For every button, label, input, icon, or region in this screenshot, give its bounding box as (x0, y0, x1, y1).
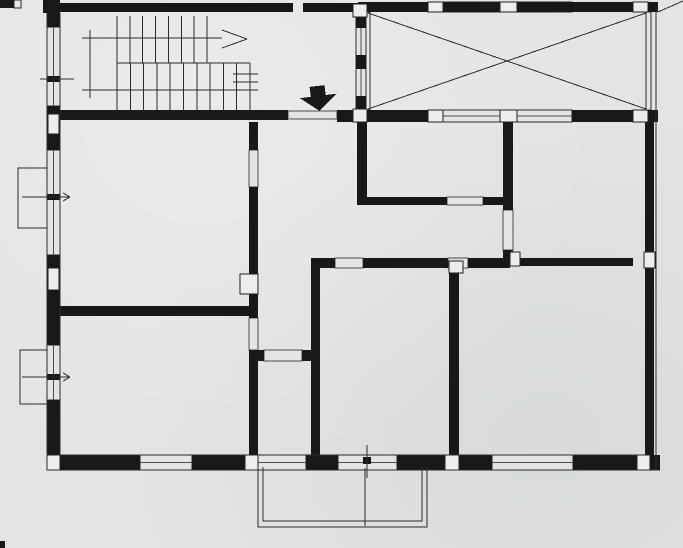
corridor-block (510, 252, 520, 266)
hall-wall-a-mid (249, 187, 258, 318)
bottom-wall-pier-4 (397, 455, 445, 470)
top-left-stub-b (43, 0, 60, 13)
glazing-junction-bottom (353, 109, 367, 122)
door-hall-to-bathroom (264, 350, 302, 361)
bottom-wall-block-3 (445, 455, 459, 470)
bottom-wall-pier-2 (192, 455, 245, 470)
bottom-wall-pier-3 (306, 455, 338, 470)
bottom-wall-corner (650, 455, 660, 470)
right-wall-upper (645, 110, 654, 252)
wall-b-horizontal (58, 306, 258, 316)
wall-c-vertical (311, 258, 320, 455)
top-wall-stair-block-b (303, 3, 358, 12)
floor-plan-drawing (0, 0, 683, 548)
middle-room-top-wall-a (311, 258, 335, 268)
wall-g-top-block (449, 261, 463, 273)
bottom-wall-block-4 (637, 455, 650, 470)
top-wall-mullion-2 (500, 2, 517, 12)
door-to-kitchen (447, 197, 483, 205)
middle-room-top-wall-b (363, 258, 448, 268)
left-wall-block-1 (48, 114, 59, 134)
right-wall-block (644, 252, 655, 268)
terrace-left-edge (366, 12, 370, 110)
terrace-bwall-block-3 (633, 110, 648, 122)
scan-edge-mark (0, 541, 5, 548)
hall-wall-a-lower (249, 350, 258, 455)
bottom-wall-pier-1 (60, 455, 140, 470)
floor-plan-scan (0, 0, 683, 548)
entrance-arrow (299, 84, 339, 113)
hall-wall-a-upper (249, 122, 258, 150)
top-wall-stair-block-a (58, 3, 293, 12)
stairhall-bottom-wall-end (337, 110, 353, 122)
bottom-wall-block-1 (47, 455, 60, 470)
entrance-door-opening (288, 111, 337, 119)
flue-block (240, 274, 258, 294)
bottom-wall-block-2 (245, 455, 258, 470)
wall-g-vertical (449, 266, 459, 455)
wall-f-vertical (357, 122, 367, 205)
terrace-bottom-wall-b (572, 110, 633, 122)
bathroom-wall-b (302, 350, 311, 361)
stair-arrow-head-b (222, 39, 247, 48)
stairhall-bottom-wall (58, 110, 288, 120)
door-hall-to-lower-left-room (249, 318, 258, 350)
terrace-bwall-block-1 (428, 110, 443, 122)
top-wall-mullion-1 (428, 2, 443, 12)
right-wall-lower (645, 268, 654, 455)
bottom-wall-pier-6 (573, 455, 637, 470)
wall-e-a (358, 197, 447, 205)
top-wall-mullion-3 (633, 2, 648, 12)
left-wall-pier-1 (47, 13, 60, 27)
wall-d-upper (503, 122, 513, 210)
glazing-junction-top (353, 4, 367, 17)
terrace-bottom-wall-a (366, 110, 428, 122)
axis-arrow-bay1-b (63, 197, 70, 201)
left-wall-pier-4 (47, 400, 60, 455)
axis-arrow-bay1-a (63, 193, 70, 197)
balcony-outer-rail (258, 467, 427, 527)
glazing-mullion-2 (356, 55, 366, 69)
door-living-to-hall (249, 150, 258, 187)
wall-e-b (483, 197, 503, 205)
balcony-inner-rail (263, 467, 422, 521)
stair-arrow-head-a (222, 30, 247, 39)
bathroom-wall-a (258, 350, 264, 361)
scan-artifact-line (658, 1, 683, 12)
top-right-room-bottom-wall (520, 258, 633, 266)
terrace-right-edge (646, 12, 651, 110)
bay-window-upper (18, 168, 47, 228)
left-wall-block-2 (48, 268, 59, 290)
bottom-wall-pier-5 (459, 455, 492, 470)
terrace-bwall-block-2 (500, 110, 517, 122)
top-left-stub-a (0, 0, 14, 8)
opening-middle-room (335, 258, 363, 268)
top-left-stub-glazing (14, 0, 21, 8)
axis-arrow-bay2-b (63, 377, 70, 381)
axis-arrow-bay2-a (63, 373, 70, 377)
door-to-top-right-room (503, 210, 513, 250)
